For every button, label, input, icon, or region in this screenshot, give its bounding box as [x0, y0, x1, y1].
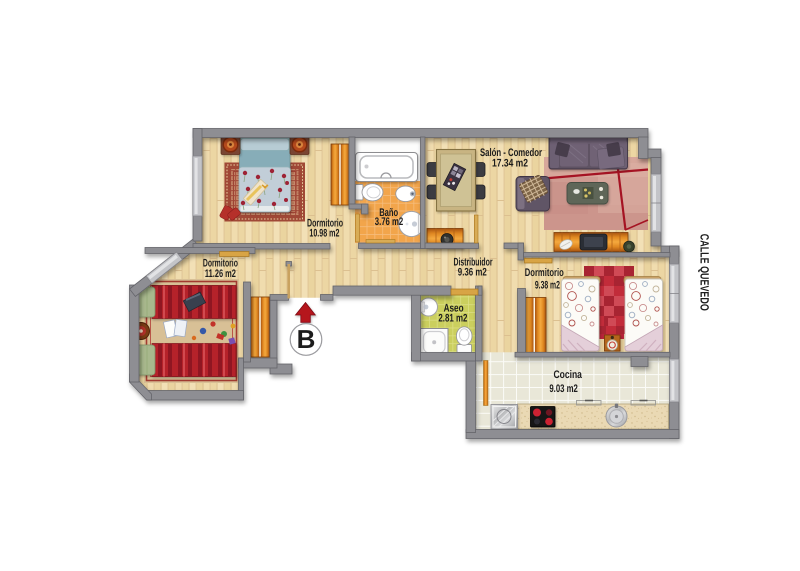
svg-text:3.76 m2: 3.76 m2	[375, 216, 404, 228]
svg-text:9.38 m2: 9.38 m2	[535, 279, 560, 291]
svg-text:11.26 m2: 11.26 m2	[205, 268, 236, 280]
svg-text:Dormitorio: Dormitorio	[525, 267, 564, 279]
svg-text:B: B	[297, 324, 316, 354]
svg-text:CALLE QUEVEDO: CALLE QUEVEDO	[698, 234, 712, 311]
svg-text:17.34 m2: 17.34 m2	[492, 158, 528, 170]
svg-text:10.98 m2: 10.98 m2	[309, 228, 339, 240]
svg-text:Cocina: Cocina	[553, 369, 582, 381]
svg-text:9.03 m2: 9.03 m2	[549, 383, 578, 395]
svg-text:9.36 m2: 9.36 m2	[458, 267, 487, 279]
svg-text:2.81 m2: 2.81 m2	[438, 313, 467, 325]
